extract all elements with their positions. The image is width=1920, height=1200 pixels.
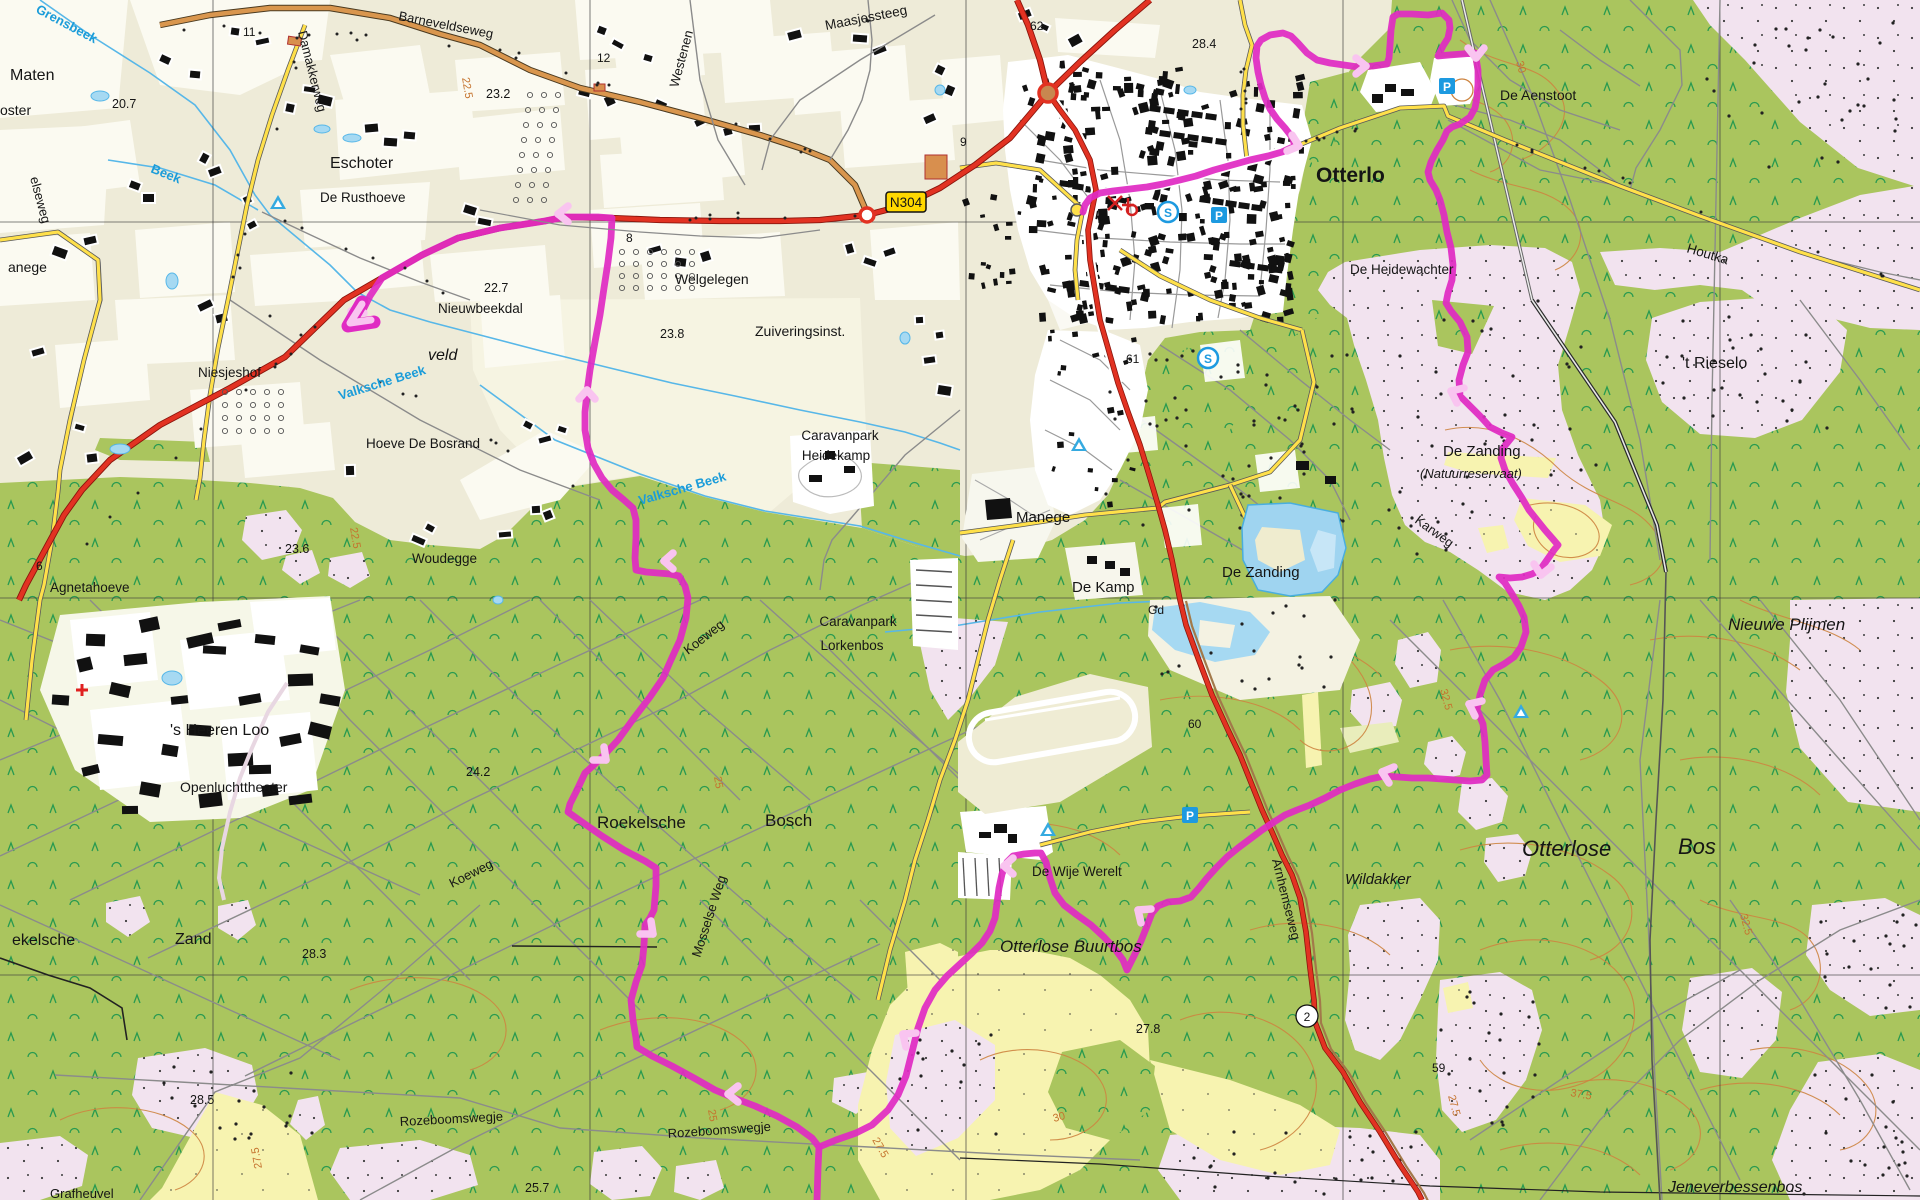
svg-text:Niesjeshof: Niesjeshof: [198, 365, 261, 380]
svg-text:Welgelegen: Welgelegen: [675, 271, 749, 287]
svg-text:Gd: Gd: [1148, 603, 1164, 617]
svg-text:11: 11: [243, 25, 256, 39]
svg-text:Grafheuvel: Grafheuvel: [50, 1186, 114, 1200]
svg-text:oster: oster: [0, 102, 31, 118]
svg-text:Openluchttheater: Openluchttheater: [180, 779, 288, 795]
svg-text:61: 61: [1126, 352, 1140, 366]
svg-text:12: 12: [597, 51, 611, 65]
svg-text:25.7: 25.7: [525, 1181, 549, 1195]
svg-text:Nieuwe Plijmen: Nieuwe Plijmen: [1728, 615, 1845, 634]
svg-text:Heidekamp: Heidekamp: [802, 448, 870, 463]
svg-text:De Heidewachter: De Heidewachter: [1350, 262, 1454, 277]
svg-text:Otterlose Buurtbos: Otterlose Buurtbos: [1000, 937, 1142, 956]
svg-text:anege: anege: [8, 259, 47, 275]
svg-text:S: S: [1164, 206, 1172, 220]
svg-text:23.2: 23.2: [486, 87, 510, 101]
svg-text:De Zanding: De Zanding: [1222, 564, 1300, 581]
svg-text:24.2: 24.2: [466, 765, 490, 779]
svg-text:Otterlo: Otterlo: [1316, 164, 1385, 187]
svg-text:Caravanpark: Caravanpark: [819, 614, 897, 629]
svg-text:28.4: 28.4: [1192, 37, 1216, 51]
svg-text:Zand: Zand: [175, 931, 211, 948]
svg-text:23.6: 23.6: [285, 542, 309, 556]
svg-text:Otterlose: Otterlose: [1522, 836, 1611, 861]
svg-text:2: 2: [1304, 1010, 1311, 1024]
svg-text:Nieuwbeekdal: Nieuwbeekdal: [438, 301, 523, 316]
svg-text:P: P: [1215, 209, 1223, 223]
svg-text:Bosch: Bosch: [765, 811, 812, 830]
svg-text:60: 60: [1188, 717, 1202, 731]
svg-text:Agnetahoeve: Agnetahoeve: [50, 580, 130, 595]
svg-text:23.8: 23.8: [660, 327, 684, 341]
svg-text:De Wije Werelt: De Wije Werelt: [1032, 864, 1122, 879]
svg-text:27.8: 27.8: [1136, 1022, 1160, 1036]
svg-text:6: 6: [36, 559, 43, 573]
svg-text:De Zanding: De Zanding: [1443, 443, 1521, 460]
svg-text:Roekelsche: Roekelsche: [597, 813, 686, 832]
svg-text:De Kamp: De Kamp: [1072, 579, 1135, 596]
svg-text:25: 25: [711, 775, 725, 789]
svg-text:20.7: 20.7: [112, 97, 136, 111]
svg-text:Caravanpark: Caravanpark: [801, 428, 879, 443]
svg-text:'s Heeren Loo: 's Heeren Loo: [170, 722, 269, 739]
svg-text:De Aenstoot: De Aenstoot: [1500, 87, 1576, 103]
svg-text:P: P: [1186, 809, 1194, 823]
svg-text:ekelsche: ekelsche: [12, 932, 75, 949]
svg-text:Bos: Bos: [1678, 834, 1716, 859]
svg-text:(Natuurreservaat): (Natuurreservaat): [1420, 466, 1522, 481]
svg-text:28.3: 28.3: [302, 947, 326, 961]
svg-text:28.5: 28.5: [190, 1093, 214, 1107]
svg-text:Lorkenbos: Lorkenbos: [820, 638, 883, 653]
svg-text:Manege: Manege: [1016, 509, 1070, 526]
svg-text:Maten: Maten: [10, 67, 54, 84]
svg-text:Eschoter: Eschoter: [330, 155, 394, 172]
svg-text:62: 62: [1030, 19, 1044, 33]
svg-text:22.7: 22.7: [484, 281, 508, 295]
svg-text:9: 9: [960, 135, 967, 149]
svg-text:Zuiveringsinst.: Zuiveringsinst.: [755, 323, 845, 339]
svg-text:Wildakker: Wildakker: [1345, 871, 1412, 888]
svg-text:N304: N304: [890, 195, 923, 210]
svg-text:Jeneverbessenbos: Jeneverbessenbos: [1667, 1179, 1802, 1196]
svg-text:Woudegge: Woudegge: [412, 551, 477, 566]
svg-text:S: S: [1204, 352, 1212, 366]
svg-text:veld: veld: [428, 347, 458, 364]
svg-text:Hoeve De Bosrand: Hoeve De Bosrand: [366, 436, 480, 451]
svg-text:P: P: [1443, 80, 1451, 94]
svg-text:59: 59: [1432, 1061, 1446, 1075]
svg-text:'t Rieselo: 't Rieselo: [1682, 355, 1747, 372]
svg-text:De Rusthoeve: De Rusthoeve: [320, 190, 406, 205]
svg-text:8: 8: [626, 231, 633, 245]
svg-text:25: 25: [705, 1108, 719, 1122]
